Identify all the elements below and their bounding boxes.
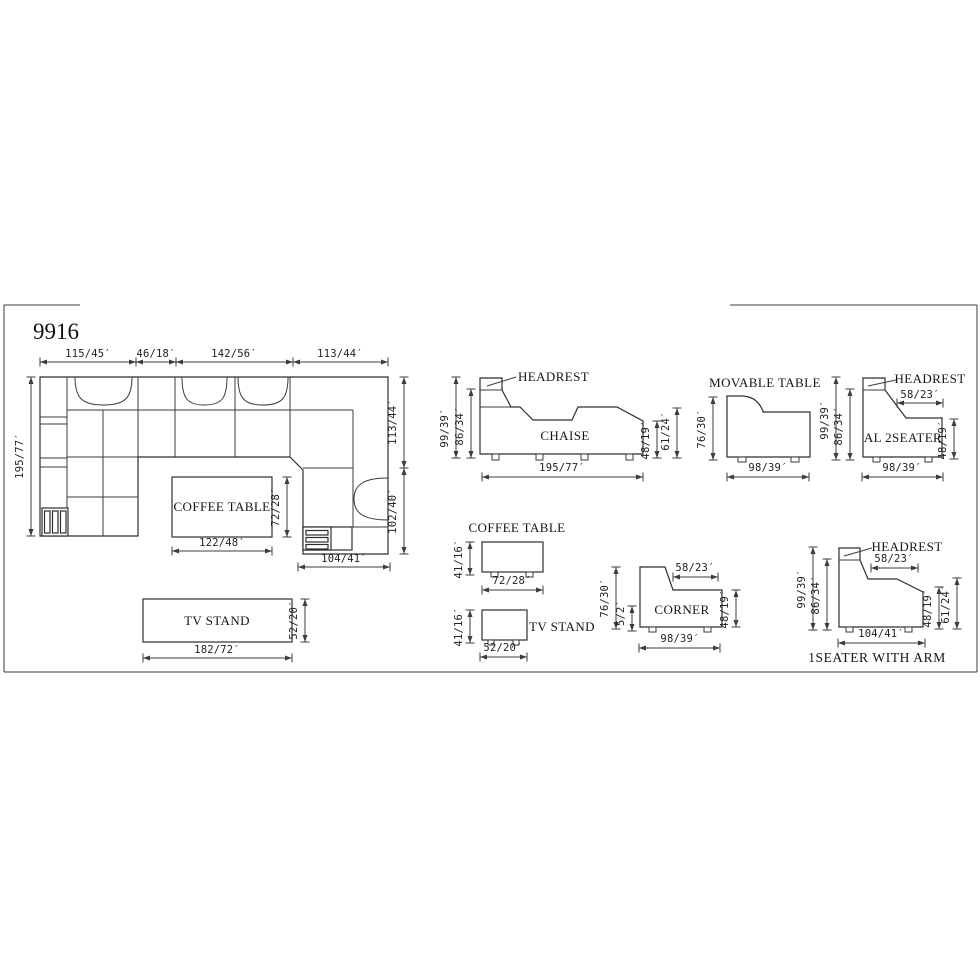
- corner-outline: [640, 567, 722, 627]
- plan-top_dims-2-dim-label: 142/56′: [211, 348, 257, 360]
- plan-right_dim_upper-dim: 113/44′: [387, 377, 409, 468]
- tv-stand-side-label: TV STAND: [529, 619, 595, 634]
- views-corner-back_depth_dim-dim-label: 58/23′: [675, 562, 714, 574]
- model-number: 9916: [33, 319, 79, 344]
- views-one_seater_with_arm-total_height_dim-dim-label: 99/39′: [796, 569, 808, 608]
- chaise-label: CHAISE: [540, 428, 589, 443]
- views-coffee_table-width_dim-dim: 72/28′: [482, 575, 543, 595]
- views-corner-width_dim-dim: 98/39′: [639, 633, 720, 653]
- plan-top_dims-3-dim-label: 113/44′: [317, 348, 363, 360]
- plan-top_dims-0-dim: 115/45′: [40, 348, 136, 367]
- floor-plan: COFFEE TABLE TV STAND: [40, 377, 388, 642]
- coffee-table-side-label: COFFEE TABLE: [468, 520, 565, 535]
- views-al_2seater-total_height_dim-dim-label: 99/39′: [819, 400, 831, 439]
- views-chaise-length_dim-dim: 195/77′: [482, 462, 643, 482]
- plan-coffee_table-depth_dim-dim-label: 72/28′: [270, 487, 282, 526]
- plan-tv_stand-width_dim-dim: 182/72′: [143, 644, 292, 663]
- coffee-table-side-view: COFFEE TABLE: [468, 520, 565, 577]
- views-al_2seater-back_depth_dim-dim: 58/23′: [897, 389, 943, 408]
- al-2seater-headrest-label: HEADREST: [894, 371, 965, 386]
- plan-right_dim_lower-dim-label: 102/40′: [387, 488, 399, 534]
- armrest-hatch: [42, 508, 68, 536]
- views-al_2seater-width_dim-dim: 98/39′: [862, 462, 943, 482]
- views-al_2seater-back_depth_dim-dim-label: 58/23′: [900, 389, 939, 401]
- views-movable_table-width_dim-dim: 98/39′: [727, 462, 809, 482]
- views-corner-width_dim-dim-label: 98/39′: [660, 633, 699, 645]
- views-one_seater_with_arm-width_dim-dim-label: 104/41′: [858, 628, 904, 640]
- coffee-table-outline: [482, 542, 543, 572]
- views-chaise-seat_height_dim-dim-label: 48/19′: [640, 420, 652, 459]
- plan-tv_stand-depth_dim-dim: 52/20′: [288, 599, 310, 642]
- views-tv_stand-height_dim-dim-label: 41/16′: [453, 607, 465, 646]
- movable-table-label: MOVABLE TABLE: [709, 375, 821, 390]
- plan-coffee_table-width_dim-dim: 122/48′: [172, 537, 272, 556]
- plan-bottom_right_dim-dim-label: 104/41′: [321, 553, 367, 565]
- coffee-table-plan: COFFEE TABLE: [172, 477, 272, 537]
- dimension-annotations: 115/45′46/18′142/56′113/44′195/77′113/44…: [14, 348, 962, 663]
- views-tv_stand-width_dim-dim-label: 52/20′: [483, 642, 522, 654]
- views-chaise-arm_height_dim-dim-label: 61/24′: [660, 411, 672, 450]
- views-tv_stand-width_dim-dim: 52/20′: [480, 642, 527, 662]
- movable-table-outline: [727, 396, 810, 457]
- views-tv_stand-height_dim-dim: 41/16′: [453, 607, 475, 646]
- drawing-sheet: 9916: [0, 0, 980, 980]
- plan-top_dims-2-dim: 142/56′: [176, 348, 293, 367]
- chaise-headrest-label: HEADREST: [518, 369, 589, 384]
- views-chaise-arm_height_dim-dim: 61/24′: [660, 408, 682, 458]
- plan-left_dim-dim: 195/77′: [14, 377, 36, 536]
- al-2seater-headrest-leader: [868, 380, 896, 386]
- views-corner-height_dim-dim-label: 76/30′: [599, 578, 611, 617]
- plan-top_dims-3-dim: 113/44′: [293, 348, 388, 367]
- views-coffee_table-height_dim-dim: 41/16′: [453, 539, 475, 578]
- views-movable_table-height_dim-dim-label: 76/30′: [696, 409, 708, 448]
- views-coffee_table-width_dim-dim-label: 72/28′: [492, 575, 531, 587]
- tv-stand-plan-label: TV STAND: [184, 613, 250, 628]
- views-corner-base_clearance_dim-dim: 5/2′: [615, 600, 637, 631]
- views-corner-back_depth_dim-dim: 58/23′: [673, 562, 718, 582]
- plan-right_dim_upper-dim-label: 113/44′: [387, 399, 399, 445]
- views-al_2seater-seat_height_dim-dim: 48/19′: [937, 419, 959, 460]
- one-seater-headrest-label: HEADREST: [871, 539, 942, 554]
- views-coffee_table-height_dim-dim-label: 41/16′: [453, 539, 465, 578]
- plan-coffee_table-width_dim-dim-label: 122/48′: [199, 537, 245, 549]
- views-chaise-back_height_dim-dim: 86/34′: [454, 389, 476, 458]
- views-one_seater_with_arm-arm_height_dim-dim-label: 61/24′: [940, 584, 952, 623]
- views-al_2seater-back_height_dim-dim-label: 86/34′: [833, 406, 845, 445]
- tv-stand-plan: TV STAND: [143, 599, 292, 642]
- corner-label: CORNER: [654, 602, 709, 617]
- al-2seater-label: AL 2SEATER: [864, 430, 942, 445]
- tv-stand-side-view: TV STAND: [482, 610, 595, 645]
- views-chaise-seat_height_dim-dim: 48/19′: [640, 420, 662, 459]
- one-seater-label: 1SEATER WITH ARM: [808, 650, 946, 665]
- coffee-table-plan-label: COFFEE TABLE: [173, 499, 270, 514]
- views-movable_table-width_dim-dim-label: 98/39′: [748, 462, 787, 474]
- plan-tv_stand-depth_dim-dim-label: 52/20′: [288, 600, 300, 639]
- plan-top_dims-1-dim: 46/18′: [136, 348, 176, 367]
- plan-top_dims-1-dim-label: 46/18′: [136, 348, 175, 360]
- views-one_seater_with_arm-back_depth_dim-dim-label: 58/23′: [874, 553, 913, 565]
- movable-table-plan-hatch: [303, 527, 352, 550]
- views-corner-seat_height_dim-dim: 48/19′: [719, 589, 741, 628]
- page-border: [4, 305, 977, 672]
- views-one_seater_with_arm-arm_height_dim-dim: 61/24′: [940, 578, 962, 629]
- right-backrest-scoop: [354, 478, 388, 520]
- plan-bottom_right_dim-dim: 104/41′: [298, 553, 390, 572]
- views-al_2seater-seat_height_dim-dim-label: 48/19′: [937, 420, 949, 459]
- plan-top_dims-0-dim-label: 115/45′: [65, 348, 111, 360]
- views-corner-seat_height_dim-dim-label: 48/19′: [719, 589, 731, 628]
- views-corner-base_clearance_dim-dim-label: 5/2′: [615, 600, 627, 626]
- views-al_2seater-width_dim-dim-label: 98/39′: [882, 462, 921, 474]
- views-one_seater_with_arm-seat_height_dim-dim-label: 48/19′: [922, 588, 934, 627]
- movable-table-side-view: MOVABLE TABLE: [709, 375, 821, 462]
- one-seater-headrest-leader: [844, 548, 872, 556]
- views-chaise-total_height_dim-dim-label: 99/39′: [439, 408, 451, 447]
- al-2seater-side-view: HEADREST AL 2SEATER: [863, 371, 966, 462]
- views-chaise-length_dim-dim-label: 195/77′: [539, 462, 585, 474]
- views-one_seater_with_arm-back_height_dim-dim-label: 86/34′: [810, 575, 822, 614]
- tv-stand-outline: [482, 610, 527, 640]
- plan-coffee_table-depth_dim-dim: 72/28′: [270, 477, 292, 537]
- chaise-side-view: HEADREST CHAISE: [480, 369, 643, 460]
- views-chaise-back_height_dim-dim-label: 86/34′: [454, 406, 466, 445]
- plan-tv_stand-width_dim-dim-label: 182/72′: [194, 644, 240, 656]
- plan-left_dim-dim-label: 195/77′: [14, 433, 26, 479]
- views-movable_table-height_dim-dim: 76/30′: [696, 397, 718, 460]
- plan-right_dim_lower-dim: 102/40′: [387, 468, 409, 554]
- views-one_seater_with_arm-back_depth_dim-dim: 58/23′: [871, 553, 918, 573]
